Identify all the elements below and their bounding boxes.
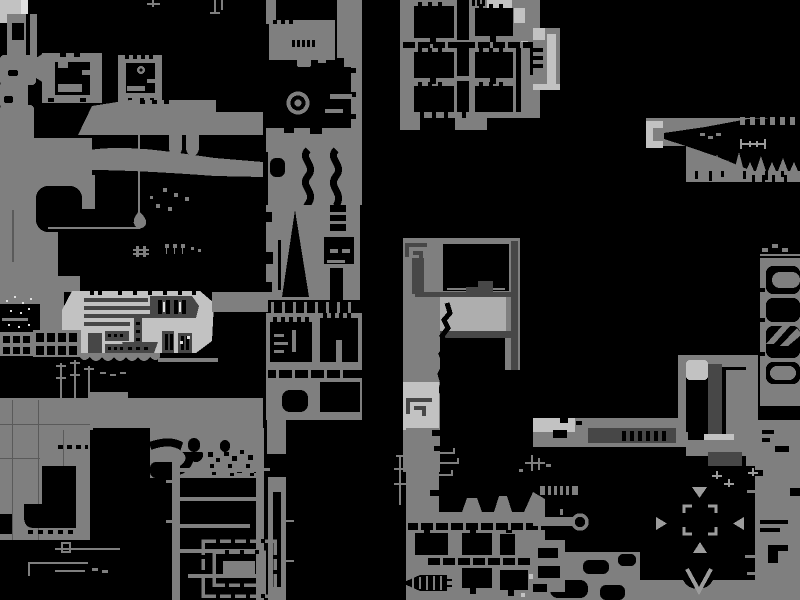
center-column-mid xyxy=(266,128,362,302)
center-rooms-block xyxy=(266,313,362,420)
east-arm xyxy=(533,418,690,447)
north-mid-structure xyxy=(533,28,560,90)
flag-structure xyxy=(36,53,102,103)
track-band xyxy=(266,300,362,313)
cell-frame-east xyxy=(760,244,800,406)
world-map xyxy=(0,0,800,600)
game-screen xyxy=(0,0,800,600)
